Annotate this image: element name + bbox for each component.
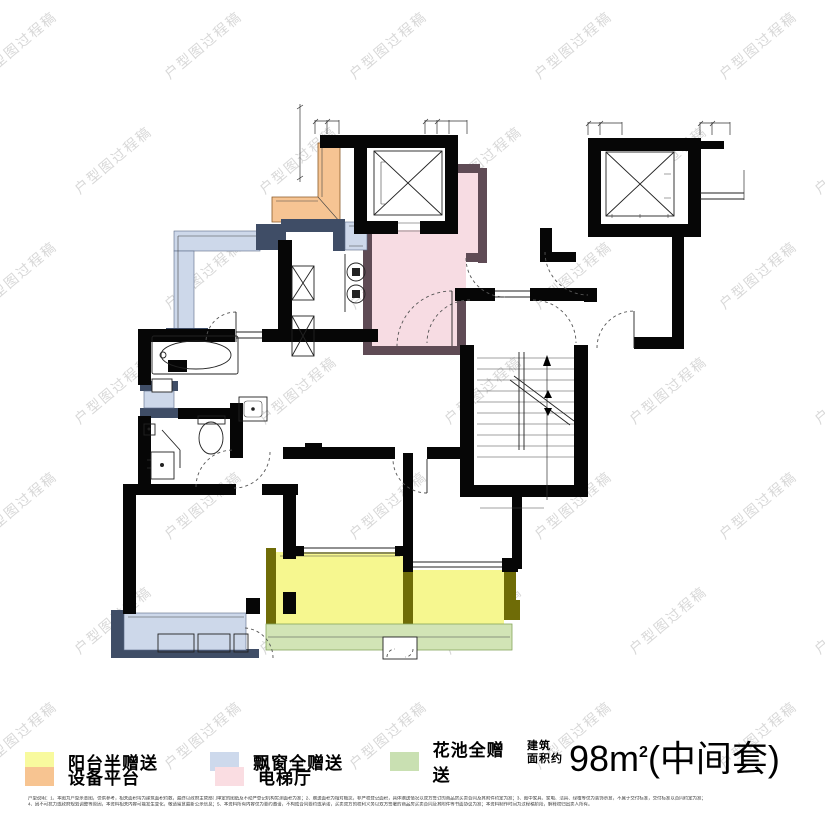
legend-item-equipment: 设备平台 <box>25 764 215 789</box>
balcony-right-zone <box>413 570 520 624</box>
legend-label-flower-bed: 花池全赠送 <box>433 736 520 786</box>
elevator-shaft-left <box>374 151 442 231</box>
legend-item-elevator-hall: 电梯厅 <box>215 764 312 789</box>
disclaimer-line-2: 4、因不可抗力或政府规划调整等原因，本资料相关内容可能发生变化，敬请留意最新公示… <box>28 802 825 808</box>
floorplan-page: 户型图过程稿户型图过程稿户型图过程稿户型图过程稿户型图过程稿户型图过程稿户型图过… <box>0 0 825 824</box>
legend-label-elevator-hall: 电梯厅 <box>258 764 312 789</box>
kitchen-stove <box>345 254 365 312</box>
staircase <box>477 352 574 508</box>
area-annotation: 建筑 面积约 98m2(中间套) <box>527 733 780 779</box>
legend-label-equipment: 设备平台 <box>68 764 140 789</box>
bay-window-bottom-left <box>111 610 259 658</box>
equipment-platform-zone <box>272 143 340 222</box>
elevator-shaft-right <box>606 152 674 218</box>
sink-hall <box>239 397 267 421</box>
area-value: 98m2(中间套) <box>569 733 780 779</box>
toilet <box>198 416 225 454</box>
area-prefix: 建筑 面积约 <box>527 740 563 766</box>
disclaimer-text: 户型说明：1、本图为户型示意图，仅供参考，相关面积均为建筑面积约数，最终以政府主… <box>28 796 825 808</box>
balcony-center-zone <box>266 548 413 628</box>
legend-swatch-elevator-hall <box>215 767 244 786</box>
floorplan-drawing <box>0 0 825 728</box>
sink-left <box>147 452 174 479</box>
legend-item-flower-bed: 花池全赠送 <box>390 736 520 786</box>
flower-bed-opening <box>383 637 417 659</box>
wardrobe-1 <box>292 266 314 300</box>
legend-swatch-flower-bed <box>390 752 418 771</box>
flower-bed-zone <box>266 624 512 659</box>
legend-swatch-equipment <box>25 767 54 786</box>
bay-window-top-left <box>166 224 286 341</box>
